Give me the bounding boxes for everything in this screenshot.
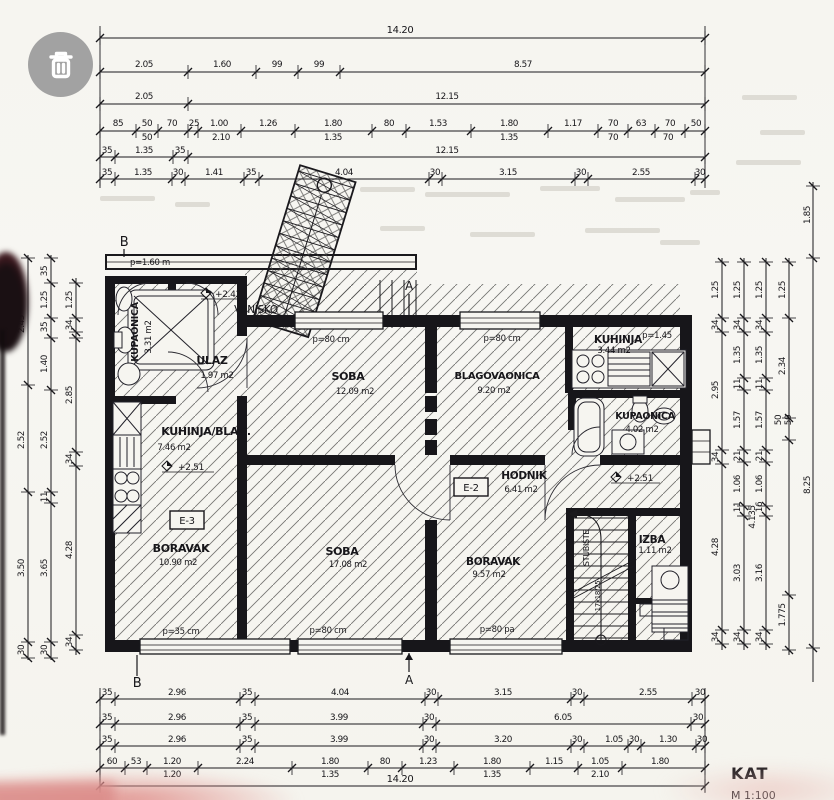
- room-area: 1.11 m2: [638, 546, 671, 556]
- dim-label: 2.96: [168, 713, 187, 723]
- dim-label: 30: [572, 735, 583, 745]
- dim-label: 4.04: [331, 688, 350, 698]
- dim-label: 1.06: [755, 474, 765, 493]
- dim-label: 63: [636, 119, 646, 129]
- electrical-tag: E-3: [179, 516, 194, 527]
- dim-label: 30: [173, 168, 184, 178]
- dim-label: 35: [102, 713, 112, 723]
- dim-label: 3.15: [494, 688, 512, 698]
- dim-label: 1.30: [659, 735, 678, 745]
- dim-label: 50: [142, 133, 153, 143]
- room-label: IZBA: [639, 534, 667, 546]
- dim-label: 1.80: [651, 757, 670, 767]
- dim-label: 2.10: [212, 133, 231, 143]
- room-area: 9.57 m2: [472, 570, 505, 580]
- dim-label: 1.25: [65, 291, 75, 309]
- room-label: KUPAONICA: [615, 411, 675, 422]
- dim-label: 1.57: [733, 411, 743, 429]
- dim-label: 1.35: [483, 770, 501, 780]
- dim-label: 1.80: [500, 119, 519, 129]
- room-area: 1.97 m2: [200, 371, 233, 381]
- dim-label: 21: [733, 451, 743, 461]
- room-label: SOBA: [332, 370, 366, 383]
- dim-label: 1.35: [733, 346, 743, 364]
- dim-label: 34: [755, 319, 765, 330]
- dim-label: 3.15: [499, 168, 517, 178]
- dim-label: 2.95: [711, 381, 721, 399]
- dim-label: 1.15: [545, 757, 563, 767]
- dim-label: 2.85: [65, 386, 75, 404]
- dim-label: 2.05: [135, 92, 153, 102]
- dim-label: 14.20: [387, 774, 414, 785]
- dim-label: 34: [65, 636, 75, 647]
- room-area: 4.02 m2: [625, 425, 658, 435]
- dim-label: 35: [102, 688, 112, 698]
- dim-label: 99: [314, 60, 324, 70]
- dim-label: 1.05: [591, 757, 609, 767]
- dim-label: 1.20: [163, 770, 182, 780]
- dim-label: 1.41: [205, 168, 223, 178]
- dim-label: 1.80: [324, 119, 343, 129]
- dim-label: 1.25: [40, 291, 50, 309]
- dim-label: 30: [424, 735, 435, 745]
- floor-title: KAT: [731, 764, 768, 783]
- room-label: ULAZ: [196, 354, 228, 367]
- dim-label: 35: [242, 688, 252, 698]
- dim-label: 3.03: [733, 564, 743, 582]
- dim-label: 1.35: [755, 346, 765, 364]
- dim-label: 34: [755, 631, 765, 642]
- scale-note: M 1:100: [731, 789, 776, 800]
- dim-label: 4.135: [748, 505, 758, 528]
- dim-label: 30: [40, 644, 50, 655]
- dim-label: 80: [384, 119, 395, 129]
- dim-label: 34: [733, 631, 743, 642]
- dim-label: 1.775: [778, 603, 788, 626]
- room-label: KUPAONICA: [130, 301, 141, 361]
- dim-label: 1.35: [500, 133, 518, 143]
- dim-label: 30: [576, 168, 587, 178]
- dim-label: 2.55: [639, 688, 657, 698]
- electrical-tag: E-2: [463, 483, 478, 494]
- dim-label: 35: [102, 168, 112, 178]
- window-label: p=80 cm: [484, 334, 521, 344]
- dim-label: 3.50: [17, 558, 27, 577]
- dim-label: 34: [711, 631, 721, 642]
- room-area: 17.08 m2: [329, 560, 367, 570]
- dim-label: 35: [175, 146, 185, 156]
- dim-label: 2.55: [632, 168, 650, 178]
- dim-label: 4.28: [65, 541, 75, 559]
- window-label: p=1.45: [642, 331, 672, 341]
- dim-label: 1.05: [605, 735, 623, 745]
- dim-label: 11: [755, 379, 765, 389]
- room-area: 3.44 m2: [597, 346, 630, 356]
- dim-label: 70: [663, 133, 674, 143]
- room-label: BLAGOVAONICA: [454, 371, 540, 382]
- dim-label: 53: [131, 757, 141, 767]
- dim-label: 70: [608, 133, 619, 143]
- room-label: SOBA: [326, 545, 360, 558]
- dim-label: 3.99: [330, 713, 348, 723]
- dim-label: 85: [113, 119, 123, 129]
- section-marker-a-top: A: [405, 279, 414, 293]
- dim-label: 1.40: [40, 354, 50, 373]
- dim-label: 35: [242, 735, 252, 745]
- dim-label: 34: [733, 319, 743, 330]
- dim-label: 1.35: [135, 146, 153, 156]
- dim-label: 1.60: [213, 60, 232, 70]
- stair-step-label: 17x18/25: [594, 581, 602, 612]
- dim-label: 2.52: [17, 431, 27, 449]
- dim-label: 1.20: [163, 757, 182, 767]
- dim-label: 2.05: [135, 60, 153, 70]
- dim-label: 35: [102, 735, 112, 745]
- parapet-label: p=1.60 m: [130, 258, 170, 268]
- window-label: p=80 pa: [480, 625, 515, 635]
- room-area: 10.90 m2: [159, 558, 197, 568]
- dim-label: 2.96: [168, 688, 187, 698]
- photo-of-floor-plan: 14.202.051.6099998.572.0512.15855070251.…: [0, 0, 834, 800]
- dim-label: 11: [40, 492, 50, 502]
- dim-label: 8.25: [803, 476, 813, 494]
- dim-label: 1.25: [778, 281, 788, 299]
- dim-label: 3.65: [40, 559, 50, 577]
- room-area: 7.46 m2: [157, 443, 190, 453]
- dim-label: 1.26: [259, 119, 278, 129]
- dim-label: 34: [711, 451, 721, 462]
- room-area: 12.09 m2: [336, 387, 374, 397]
- dim-label: 2.52: [40, 431, 50, 449]
- dim-label: 80: [380, 757, 391, 767]
- dim-label: 2.96: [168, 735, 187, 745]
- dim-label: 21: [755, 451, 765, 461]
- dim-label: 2.24: [236, 757, 255, 767]
- dim-label: 2.34: [778, 356, 788, 375]
- dim-label: 1.17: [564, 119, 582, 129]
- outdoor-label: VANJSKO: [234, 304, 278, 316]
- dim-label: 70: [665, 119, 676, 129]
- dim-label: 1.25: [711, 281, 721, 299]
- floor-plan-drawing: 14.202.051.6099998.572.0512.15855070251.…: [0, 0, 834, 800]
- section-marker-b-top: B: [120, 235, 129, 250]
- dim-label: 1.35: [321, 770, 339, 780]
- dim-label: 1.80: [483, 757, 502, 767]
- dim-label: 4.28: [711, 538, 721, 556]
- window-label: p=80 cm: [310, 626, 347, 636]
- room-area: 9.20 m2: [477, 386, 510, 396]
- dim-label: 2.10: [591, 770, 610, 780]
- room-label: KUHINJA: [594, 334, 643, 346]
- room-label: KUHINJA/BLAG.: [161, 425, 251, 438]
- dim-label: 30: [430, 168, 441, 178]
- dim-label: 1.57: [755, 411, 765, 429]
- dim-label: 3.99: [330, 735, 348, 745]
- dim-label: 50: [691, 119, 702, 129]
- window-label: p=35 cm: [163, 627, 200, 637]
- dim-label: 1.35: [324, 133, 342, 143]
- dim-label: 30: [697, 735, 708, 745]
- dim-label: 1.06: [733, 474, 743, 493]
- dim-label: 70: [167, 119, 178, 129]
- dim-label: 50: [142, 119, 153, 129]
- dim-label: 99: [272, 60, 282, 70]
- dim-label: 60: [107, 757, 118, 767]
- dim-label: 34: [65, 319, 75, 330]
- dim-label: 1.00: [210, 119, 229, 129]
- dim-label: 35: [242, 713, 252, 723]
- dim-label: 30: [572, 688, 583, 698]
- dim-label: 35: [40, 266, 50, 276]
- dim-label: 11: [733, 502, 743, 512]
- room-area: 6.41 m2: [504, 485, 537, 495]
- dim-label: 4.04: [335, 168, 354, 178]
- level-mark: +2.51: [627, 474, 653, 484]
- room-area: 3.31 m2: [144, 320, 154, 353]
- delete-photo-button[interactable]: [28, 32, 93, 97]
- dim-label: 6.05: [554, 713, 572, 723]
- dim-label: 50: [774, 414, 784, 425]
- dim-label: 12.15: [435, 92, 458, 102]
- dim-label: 3.16: [755, 563, 765, 582]
- dim-label: 1.35: [134, 168, 152, 178]
- dim-label: 30: [695, 688, 706, 698]
- dim-label: 30: [17, 644, 27, 655]
- room-label: HODNIK: [501, 470, 548, 482]
- dim-label: 1.25: [755, 281, 765, 299]
- dim-label: 1.25: [733, 281, 743, 299]
- level-mark: +2.42: [215, 290, 241, 300]
- dim-label: 3.20: [494, 735, 513, 745]
- dim-label: 2.45: [17, 315, 27, 333]
- dim-label: 35: [40, 322, 50, 332]
- room-label: BORAVAK: [466, 556, 521, 568]
- dim-label: 30: [424, 713, 435, 723]
- dim-label: 1.85: [803, 206, 813, 224]
- dim-label: 14.20: [387, 25, 414, 36]
- dim-label: 30: [629, 735, 640, 745]
- dim-label: 12.15: [435, 146, 458, 156]
- level-mark: +2.51: [178, 463, 204, 473]
- dim-label: 50: [784, 414, 794, 425]
- dim-label: 1.53: [429, 119, 447, 129]
- dim-label: 35: [102, 146, 112, 156]
- section-marker-b-bottom: B: [133, 676, 142, 691]
- trash-icon: [41, 45, 81, 85]
- dim-label: 25: [189, 119, 199, 129]
- dim-label: 1.23: [419, 757, 437, 767]
- room-label: BORAVAK: [153, 542, 210, 555]
- dim-label: 34: [711, 319, 721, 330]
- section-marker-a-bottom: A: [405, 673, 414, 687]
- dim-label: 30: [695, 168, 706, 178]
- dim-label: 30: [426, 688, 437, 698]
- dim-label: 70: [608, 119, 619, 129]
- stair-label: STUBIŠTE: [580, 530, 591, 567]
- dim-label: 11: [733, 379, 743, 389]
- dim-label: 30: [693, 713, 704, 723]
- dim-label: 1.80: [321, 757, 340, 767]
- dim-label: 35: [246, 168, 256, 178]
- dim-label: 34: [65, 453, 75, 464]
- dim-label: 8.57: [514, 60, 532, 70]
- window-label: p=80 cm: [313, 335, 350, 345]
